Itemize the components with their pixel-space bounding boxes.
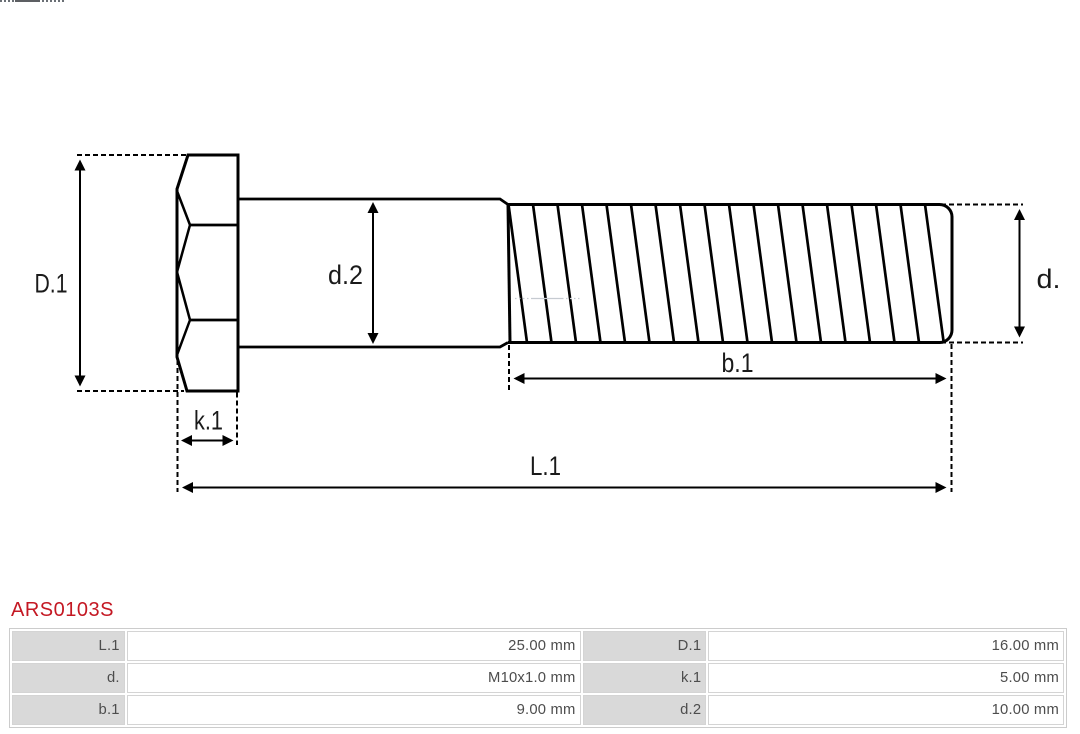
- svg-text:d.: d.: [1037, 264, 1061, 294]
- svg-text:k.1: k.1: [194, 406, 223, 436]
- svg-text:D.1: D.1: [35, 269, 68, 299]
- svg-text:b.1: b.1: [722, 348, 754, 378]
- svg-text:d.2: d.2: [328, 260, 363, 290]
- svg-text:L.1: L.1: [530, 451, 561, 481]
